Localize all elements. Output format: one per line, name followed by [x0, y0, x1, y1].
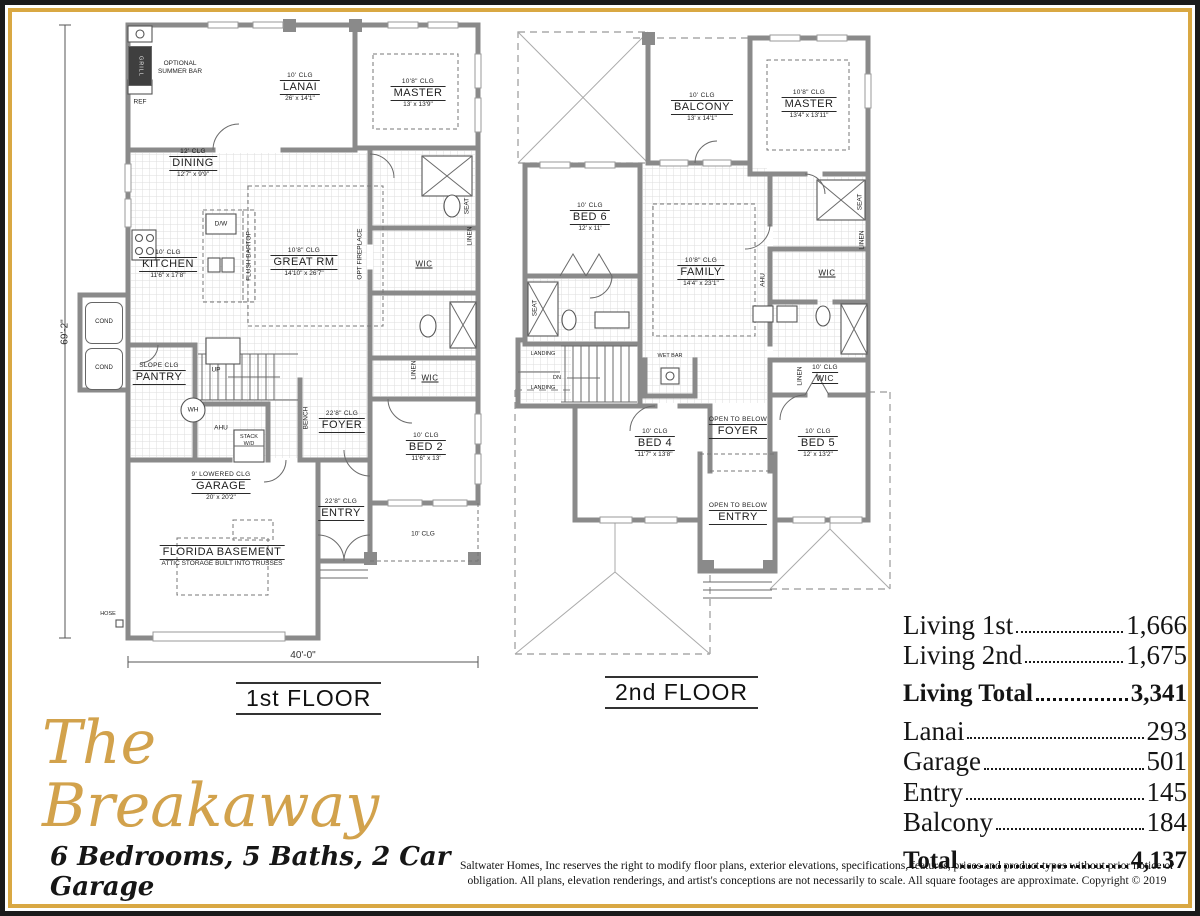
seat2-label: SEAT [857, 194, 864, 211]
bench-label: BENCH [303, 407, 310, 430]
floor1-height-dimension: 69'-2" [60, 319, 71, 344]
room-label-foyer1: 22'8" CLG FOYER [319, 410, 365, 433]
stairs-dn-label: DN [553, 375, 561, 381]
stat-row-garage: Garage 501 [903, 747, 1187, 776]
ahu-label: AHU [214, 425, 228, 432]
stat-row-entry: Entry 145 [903, 778, 1187, 807]
floor2-title: 2nd FLOOR [605, 676, 758, 709]
landing2-label: LANDING [531, 385, 555, 391]
hose-label: HOSE [100, 611, 116, 617]
stack-wd-label: STACK W/D [235, 434, 263, 448]
room-label-great-rm: 10'8" CLG GREAT RM 14'10" x 26'7" [270, 247, 337, 278]
floor1-width-dimension: 40'-0" [286, 650, 319, 661]
stairs-up-label: UP [211, 367, 220, 374]
plan-title: The Breakaway [42, 712, 482, 838]
ref-top-label: REF [134, 99, 147, 106]
condenser2-label: COND [85, 348, 123, 390]
porch-ceiling-label: 10' CLG [411, 531, 435, 538]
stat-row-living-total: Living Total 3,341 [903, 680, 1187, 707]
room-label-kitchen: 10' CLG KITCHEN 11'6" x 17'8" [139, 249, 197, 280]
floor1-title: 1st FLOOR [236, 682, 381, 715]
room-label-garage: 9' LOWERED CLG GARAGE 20' x 20'2" [192, 471, 251, 502]
condenser1-label: COND [85, 302, 123, 344]
linen-master2-label: LINEN [859, 230, 866, 249]
stat-row-balcony: Balcony 184 [903, 808, 1187, 837]
floor2-plan: 10' CLG BALCONY 13' x 14'1" 10'8" CLG MA… [505, 14, 905, 726]
room-label-florida-basement: FLORIDA BASEMENT ATTIC STORAGE BUILT INT… [160, 545, 285, 568]
plan-subtitle: 6 Bedrooms, 5 Baths, 2 Car Garage [50, 842, 482, 902]
wic-master2-label: WIC [818, 269, 835, 278]
wet-bar-label: WET BAR [658, 353, 683, 359]
dishwasher-label: D/W [215, 221, 228, 228]
room-label-wic-bed5: 10' CLG WIC [812, 364, 838, 384]
wic2-label: WIC [421, 374, 438, 383]
flush-bartop-label: FLUSH BARTOP [246, 231, 253, 281]
square-footage-table: Living 1st 1,666 Living 2nd 1,675 Living… [903, 610, 1187, 884]
wic1-label: WIC [415, 260, 432, 269]
water-heater-label: WH [188, 407, 199, 414]
linen1-label: LINEN [467, 226, 474, 245]
plan-branding: The Breakaway 6 Bedrooms, 5 Baths, 2 Car… [42, 712, 482, 902]
floor1-plan: 10' CLG LANAI 26' x 14'1" 10'8" CLG MAST… [58, 14, 498, 726]
room-label-pantry: SLOPE CLG PANTRY [133, 362, 186, 385]
stat-row-living-1st: Living 1st 1,666 [903, 611, 1187, 640]
linen2-label: LINEN [411, 360, 418, 379]
disclaimer-text: Saltwater Homes, Inc reserves the right … [443, 858, 1191, 888]
optional-summer-bar-label: OPTIONAL SUMMER BAR [151, 60, 209, 77]
room-label-bed2: 10' CLG BED 2 11'6" x 13' [406, 432, 446, 463]
page: 10' CLG LANAI 26' x 14'1" 10'8" CLG MAST… [0, 0, 1200, 916]
stat-row-lanai: Lanai 293 [903, 717, 1187, 746]
room-label-entry1: 22'8" CLG ENTRY [318, 498, 364, 521]
landing1-label: LANDING [531, 351, 555, 357]
room-label-entry-open-below: OPEN TO BELOW ENTRY [709, 502, 767, 525]
linen-bed5-label: LINEN [797, 366, 804, 385]
room-label-family: 10'8" CLG FAMILY 14'4" x 23'1" [677, 257, 724, 288]
room-label-master2: 10'8" CLG MASTER 13'4" x 13'11" [782, 89, 837, 120]
floor1-drawing [58, 14, 498, 726]
room-label-lanai: 10' CLG LANAI 26' x 14'1" [280, 72, 320, 103]
seat1-label: SEAT [464, 198, 471, 215]
stat-row-living-2nd: Living 2nd 1,675 [903, 641, 1187, 670]
room-label-dining: 12' CLG DINING 12'7" x 9'9" [169, 148, 217, 179]
room-label-bed6: 10' CLG BED 6 12' x 11' [570, 202, 610, 233]
room-label-bed4: 10' CLG BED 4 11'7" x 13'8" [635, 428, 675, 459]
room-label-master1: 10'8" CLG MASTER 13' x 13'9" [391, 78, 446, 109]
room-label-balcony: 10' CLG BALCONY 13' x 14'1" [671, 92, 733, 123]
ahu2-label: AHU [760, 273, 767, 287]
opt-fireplace-label: OPT FIREPLACE [357, 228, 364, 279]
grill-label: GRILL [128, 46, 152, 86]
seat-left-bath-label: SEAT [532, 300, 539, 317]
room-label-foyer-open-below: OPEN TO BELOW FOYER [709, 416, 767, 439]
room-label-bed5: 10' CLG BED 5 12' x 13'2" [798, 428, 838, 459]
